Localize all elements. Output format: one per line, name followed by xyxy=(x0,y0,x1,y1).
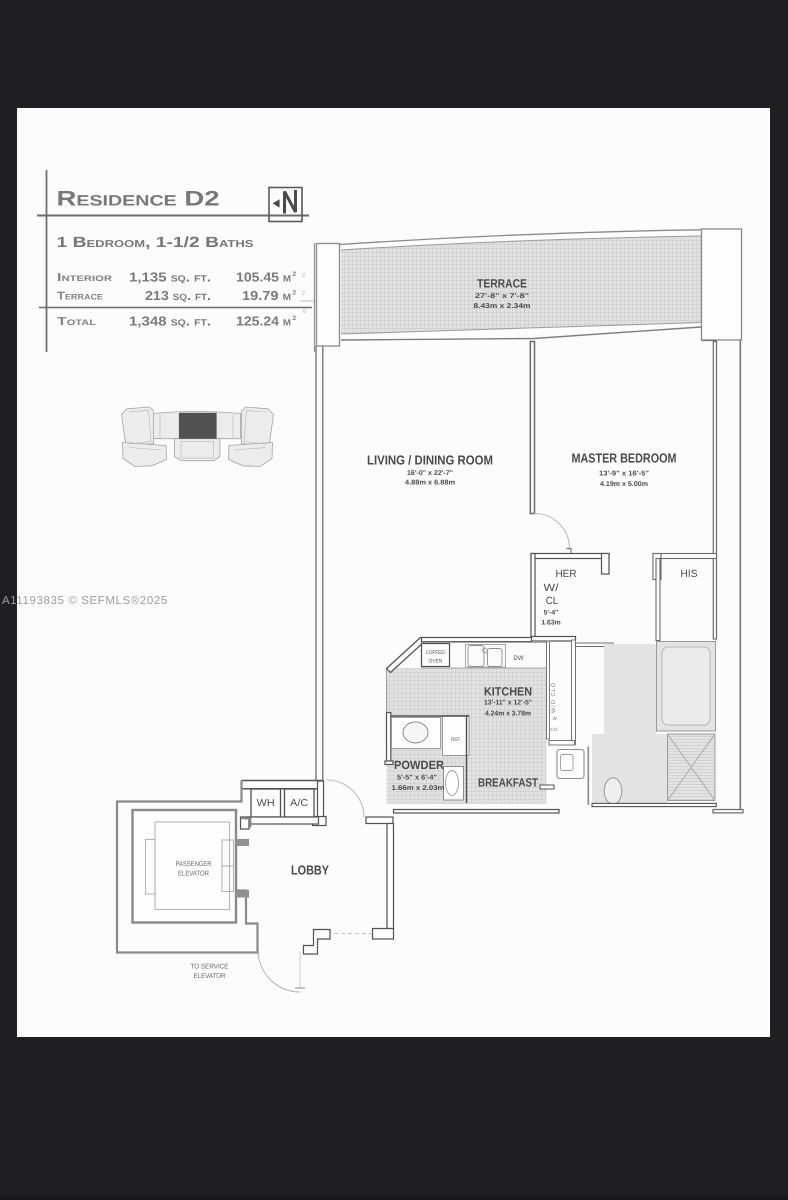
svg-text:27'-8" x 7'-8": 27'-8" x 7'-8" xyxy=(475,293,529,300)
svg-text:W/: W/ xyxy=(544,582,559,594)
svg-text:ELEVATOR: ELEVATOR xyxy=(194,973,226,980)
svg-text:DW: DW xyxy=(514,655,525,662)
svg-text:1,135 sq. ft.: 1,135 sq. ft. xyxy=(129,270,211,285)
svg-text:16'-0" x 22'-7": 16'-0" x 22'-7" xyxy=(407,470,453,477)
svg-text:0: 0 xyxy=(303,309,306,315)
svg-text:KITCHEN: KITCHEN xyxy=(484,685,532,699)
svg-text:5'-4": 5'-4" xyxy=(544,610,559,617)
svg-text:2: 2 xyxy=(302,273,305,279)
svg-text:105.45 m: 105.45 m xyxy=(236,270,291,285)
svg-text:POWDER: POWDER xyxy=(394,758,444,772)
svg-text:4.24m x 3.78m: 4.24m x 3.78m xyxy=(485,711,531,718)
svg-text:1.63m: 1.63m xyxy=(541,620,560,627)
svg-text:TERRACE: TERRACE xyxy=(477,277,527,291)
svg-text:W/D CLO: W/D CLO xyxy=(551,682,557,713)
svg-text:8.43m x 2.34m: 8.43m x 2.34m xyxy=(474,303,531,310)
svg-text:CO: CO xyxy=(551,727,558,732)
svg-text:Residence D2: Residence D2 xyxy=(57,188,220,211)
svg-text:Total: Total xyxy=(57,316,96,328)
svg-text:1 Bedroom, 1-1/2 Baths: 1 Bedroom, 1-1/2 Baths xyxy=(57,235,254,251)
svg-text:ELEVATOR: ELEVATOR xyxy=(178,871,209,878)
svg-text:COFFEE/: COFFEE/ xyxy=(426,650,446,656)
svg-text:MASTER BEDROOM: MASTER BEDROOM xyxy=(572,451,677,466)
svg-text:1,348 sq. ft.: 1,348 sq. ft. xyxy=(129,314,211,329)
svg-text:13'-11" x 12'-5": 13'-11" x 12'-5" xyxy=(484,700,532,707)
svg-text:213 sq. ft.: 213 sq. ft. xyxy=(145,288,211,303)
svg-text:A/C: A/C xyxy=(290,798,308,809)
svg-text:13'-9" x 16'-5": 13'-9" x 16'-5" xyxy=(599,471,649,478)
svg-text:Interior: Interior xyxy=(57,272,112,284)
svg-text:WH: WH xyxy=(257,798,275,809)
svg-text:TO SERVICE: TO SERVICE xyxy=(191,964,229,971)
svg-text:HER: HER xyxy=(556,568,577,580)
svg-text:BREAKFAST: BREAKFAST xyxy=(478,776,539,790)
svg-text:OVEN: OVEN xyxy=(429,659,443,665)
svg-text:A11193835 © SEFMLS®2025: A11193835 © SEFMLS®2025 xyxy=(2,595,168,607)
svg-text:1.66m x 2.03m: 1.66m x 2.03m xyxy=(392,785,445,792)
svg-text:4.88m x 6.88m: 4.88m x 6.88m xyxy=(405,480,455,487)
svg-text:LOBBY: LOBBY xyxy=(291,863,329,878)
svg-text:PASSENGER: PASSENGER xyxy=(176,861,212,868)
svg-text:HIS: HIS xyxy=(681,568,698,580)
svg-text:4.19m x 5.00m: 4.19m x 5.00m xyxy=(600,481,648,488)
svg-text:Terrace: Terrace xyxy=(57,291,104,303)
svg-text:W: W xyxy=(553,716,558,721)
svg-text:2: 2 xyxy=(293,290,297,297)
svg-text:LIVING / DINING ROOM: LIVING / DINING ROOM xyxy=(367,453,493,468)
svg-text:125.24 m: 125.24 m xyxy=(236,314,291,329)
svg-text:19.79 m: 19.79 m xyxy=(242,288,291,303)
svg-text:REF: REF xyxy=(451,737,460,743)
svg-text:2: 2 xyxy=(302,291,305,297)
svg-text:CL: CL xyxy=(546,595,559,607)
svg-text:2: 2 xyxy=(293,271,297,278)
svg-text:5'-5" x 6'-4": 5'-5" x 6'-4" xyxy=(397,775,437,782)
svg-text:2: 2 xyxy=(293,315,297,322)
